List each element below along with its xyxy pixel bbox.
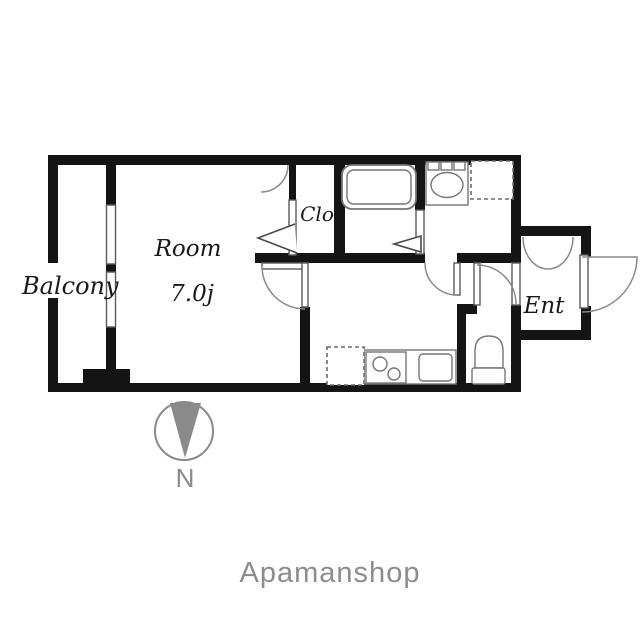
closet-door-chevron	[258, 224, 297, 253]
fridge-space-dashed	[327, 347, 364, 385]
compass: N	[155, 402, 213, 493]
balcony-label: Balcony	[21, 272, 119, 300]
compass-north-label: N	[176, 463, 195, 493]
kitchen-sink	[419, 354, 452, 381]
entrance-right-wall-upper	[581, 226, 591, 257]
washbasin-tick-1	[428, 162, 439, 170]
entrance-bottom-wall	[511, 330, 591, 340]
watermark-logo: Apamanshop	[240, 557, 421, 589]
stove-burner-2	[388, 368, 400, 380]
wall-left-upper	[48, 155, 58, 263]
wall-mid-horizontal-right	[457, 253, 511, 263]
wall-left-lower	[48, 298, 58, 392]
balcony-divider-top	[106, 160, 116, 205]
front-door-frame	[580, 255, 588, 308]
entrance-label: Ent	[523, 293, 566, 319]
bathtub-inner	[347, 170, 411, 204]
room-kitchen-wall	[300, 307, 310, 385]
toilet-door-leaf	[474, 263, 480, 305]
balcony-pier	[83, 369, 130, 389]
washbasin-tick-3	[454, 162, 465, 170]
room-label: Room	[154, 236, 222, 262]
washroom-door-arc	[425, 263, 457, 295]
closet-door-arc	[261, 165, 288, 192]
closet-label: Clo	[300, 202, 334, 226]
bath-door-chevron	[394, 236, 421, 252]
entrance-inner-arc-right	[548, 237, 573, 269]
balcony-window-upper	[107, 205, 116, 264]
toilet-door-arc	[477, 265, 516, 304]
washbasin-tick-2	[441, 162, 452, 170]
stove-burner-1	[373, 357, 387, 371]
compass-needle	[170, 403, 201, 458]
toilet-bowl	[475, 336, 503, 368]
wall-mid-horizontal	[255, 253, 425, 263]
room-door-jamb	[302, 263, 308, 307]
floor-plan-page: N Balcony Room 7.0j Clo Ent Apamanshop	[0, 0, 640, 640]
entrance-inner-arc-left	[523, 237, 548, 269]
room-size-label: 7.0j	[170, 281, 214, 307]
wall-right-lower	[511, 305, 521, 392]
toilet-tank	[472, 368, 505, 384]
washer-space-dashed	[471, 161, 513, 199]
washroom-door-leaf	[454, 263, 460, 295]
closet-partition-top	[289, 157, 296, 200]
room-door-leaf	[262, 263, 307, 269]
entrance-top-wall	[511, 226, 591, 236]
room-door-arc	[262, 266, 305, 309]
toilet-left-wall	[457, 304, 466, 384]
washbasin-bowl	[431, 173, 463, 198]
floor-plan-drawing: N Balcony Room 7.0j Clo Ent Apamanshop	[0, 0, 640, 640]
front-door-arc	[582, 257, 637, 312]
